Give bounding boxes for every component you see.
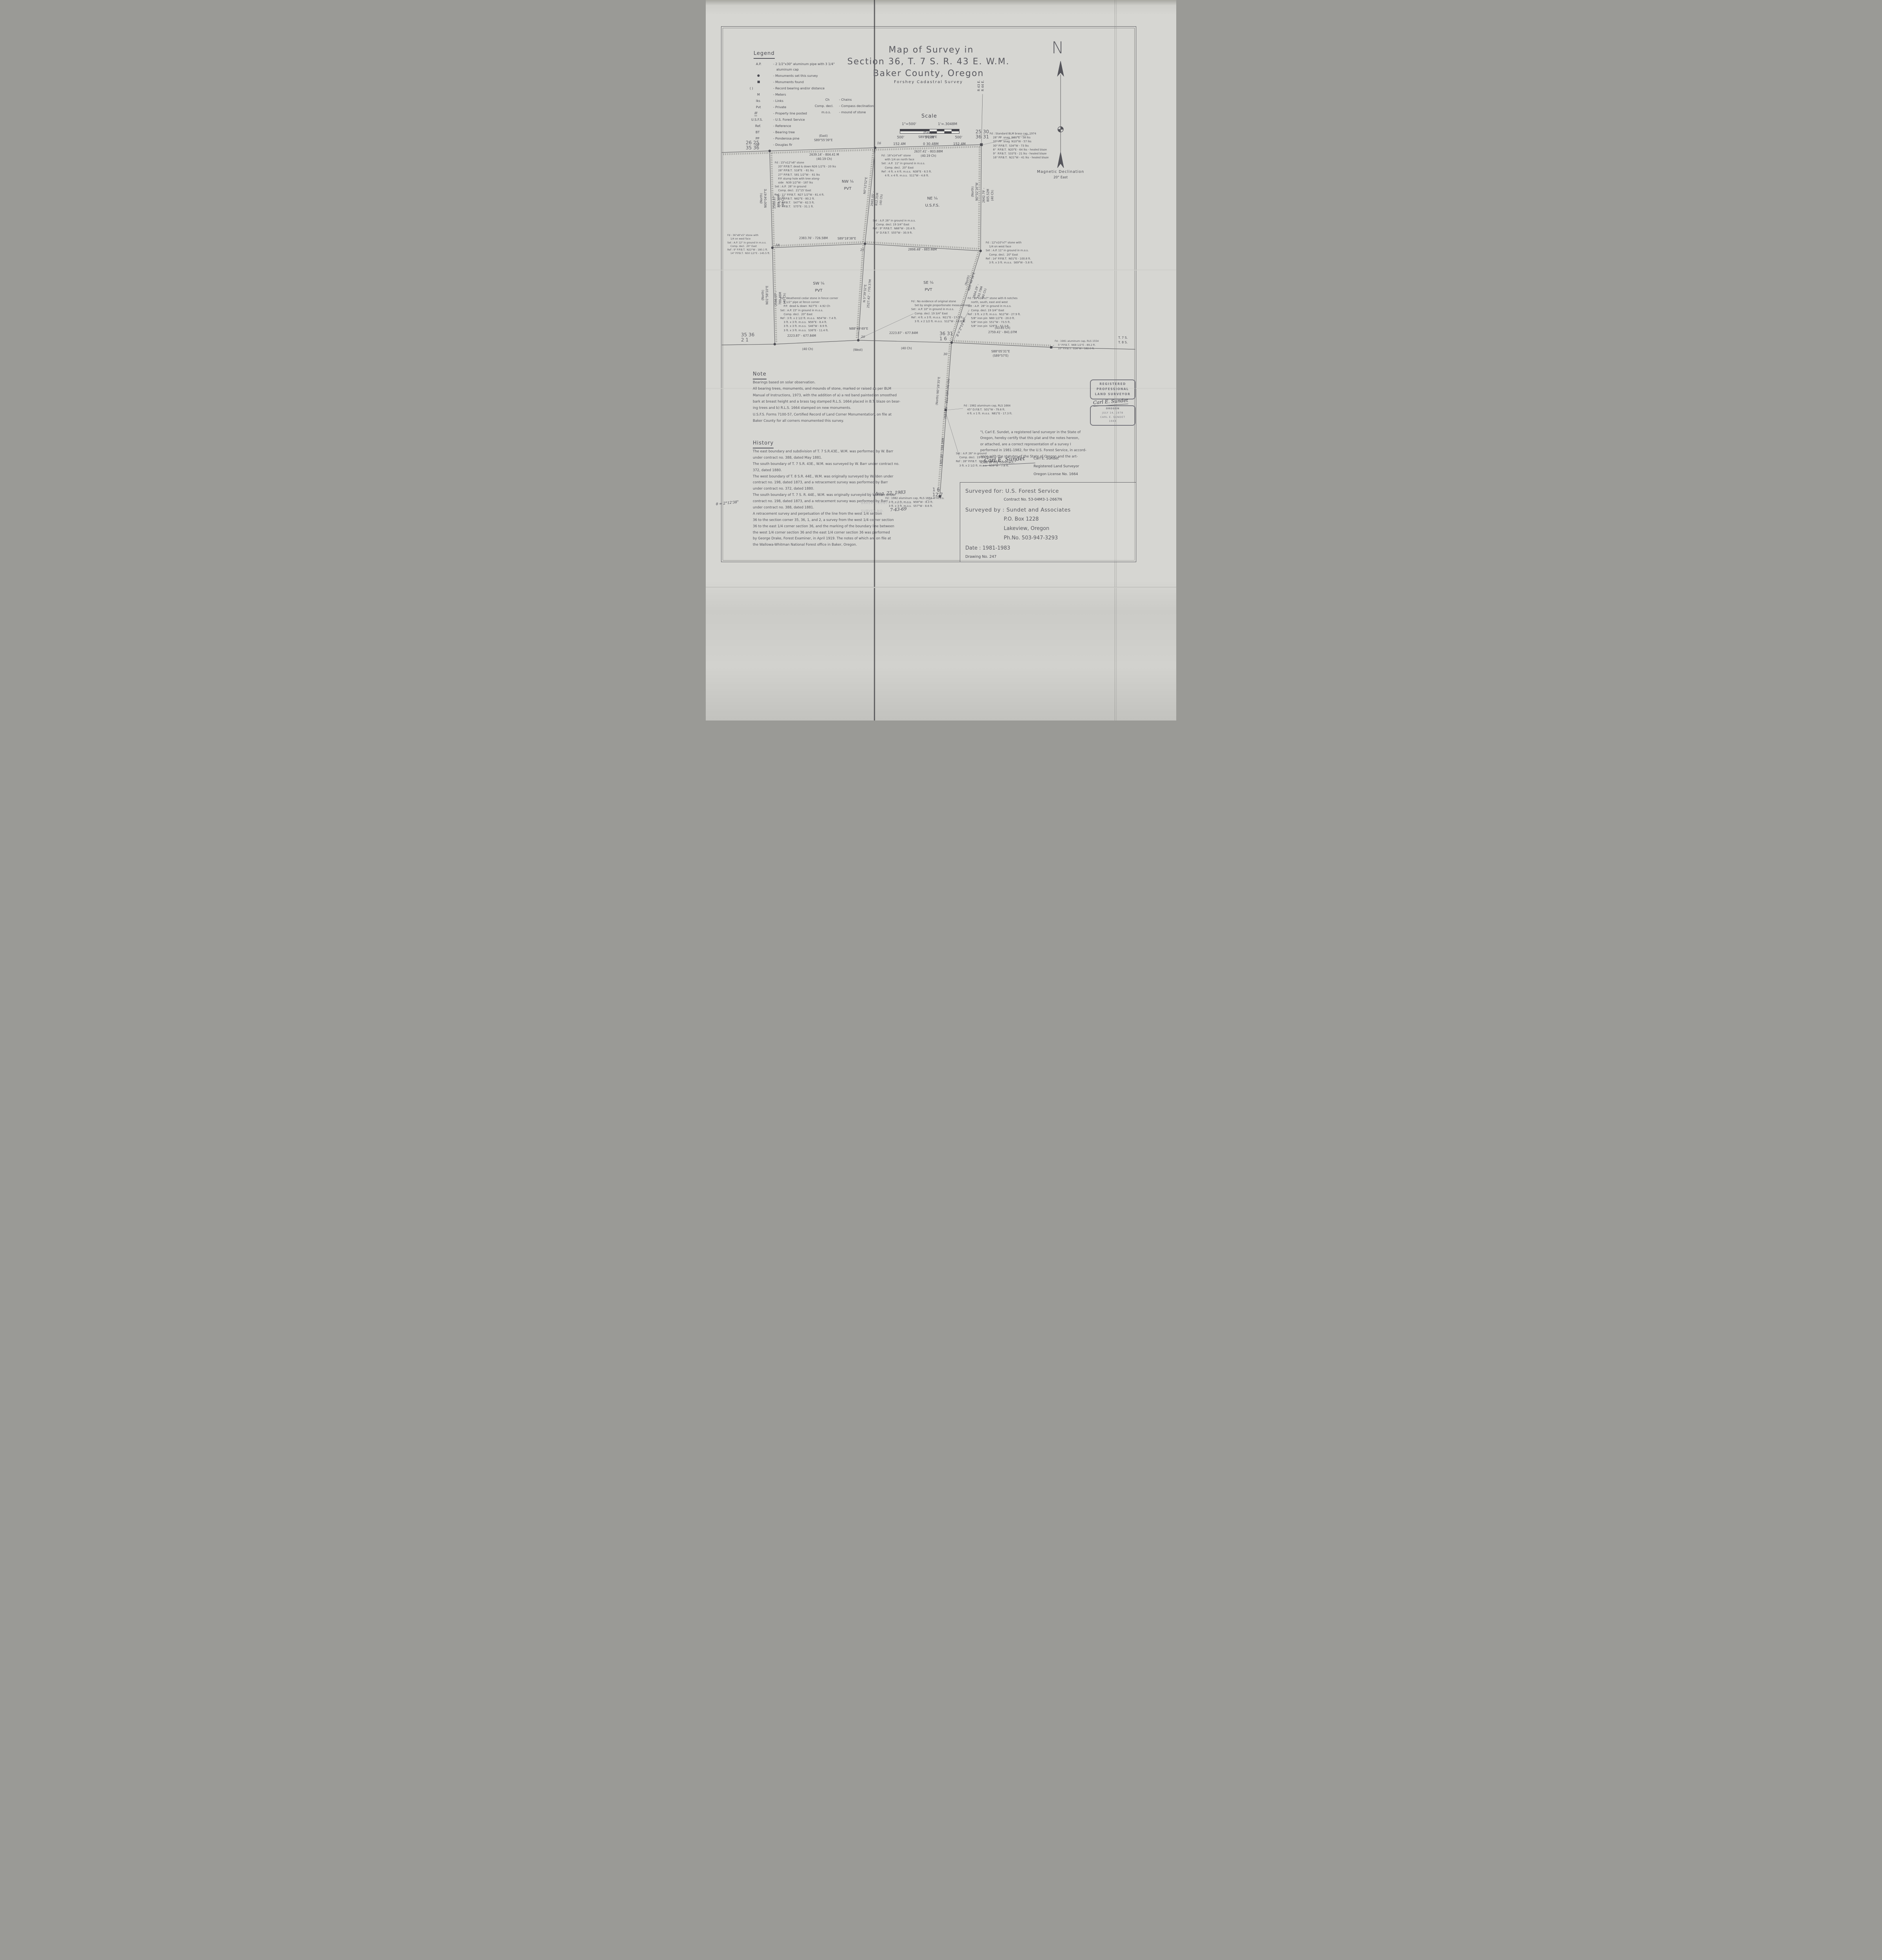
pls-stamp-top: REGISTERED PROFESSIONAL LAND SURVEYOR [1090, 379, 1135, 399]
corner-note-nw: Fd : 15"x12"x6" stone 20" P.P.B.T. dead … [775, 161, 836, 209]
line-label-north-west-bearing: (East) S89°55'39"E [814, 134, 832, 143]
line-label-mid-west-bearing: S89°18'38"E [837, 237, 856, 241]
handwritten-21: 21 [860, 248, 864, 252]
survey-map-lines [706, 0, 1176, 720]
titleblock-surveyed-for: Surveyed for: U.S. Forest Service [965, 488, 1059, 495]
quarter-label-sw: SW ¼ PVT [813, 280, 824, 294]
note-section-body: Bearings based on solar observation. All… [753, 379, 930, 424]
note-section-title: Note [753, 371, 767, 379]
stamp-line1: REGISTERED [1091, 381, 1135, 387]
quarter-label-ne: NE ¼ U.S.F.S. [925, 195, 940, 209]
filing-stamp-survey-no: SURVEY NO. [861, 509, 884, 514]
quarter-label-se: SE ¼ PVT [923, 279, 934, 294]
certification-name: Carl E. Sundet [1034, 456, 1059, 461]
corner-note-east-quarter: Fd : 12"x10"x7" stone with 1/4 on west f… [986, 241, 1033, 265]
corner-note-north-quarter: Fd : 16"x14"x4" stone with 1/4 on north … [881, 154, 932, 178]
corner-note-sw: Fd : Weathered cedar stone in fence corn… [780, 296, 838, 332]
titleblock-surveyed-by: Surveyed by : Sundet and Associates [965, 506, 1071, 514]
titleblock-date: Date : 1981-1983 [965, 545, 1010, 552]
titleblock-phone: Ph.No. 503-947-3293 [1004, 535, 1058, 542]
township-line-label: T. 7 S. T. 8 S. [1118, 336, 1128, 345]
line-label-mid-west-distance: 2383.76' - 726.58M [799, 236, 828, 241]
line-label-south-w2-chains: (40 Ch) [901, 347, 912, 351]
range-line-label: R 43 E. R 44 E. [977, 80, 985, 91]
line-label-mid-east-distance: 2898.48' - 883.46M [908, 248, 937, 252]
pls-stamp-bottom: OREGON JULY 14, 1978 CARL E. SUNDET 1664 [1090, 405, 1135, 426]
line-label-south-west-record: (West) [853, 348, 863, 352]
section-numbers-nw: 26 25 35 36 [746, 140, 759, 151]
titleblock-address1: P.O. Box 1228 [1004, 516, 1039, 523]
stamp-number: 1664 [1091, 419, 1135, 424]
section-numbers-sw: 35 36 2 1 [741, 332, 754, 343]
filing-stamp-filed: FILED [862, 492, 876, 497]
section-numbers-se: 36 31 1 6 [939, 331, 953, 341]
corner-note-west-quarter: Fd : 36"x8"x5" stone with 1/4 on west fa… [727, 234, 770, 256]
stamp-state: OREGON [1091, 407, 1135, 411]
certification-role: Registered Land Surveyor [1034, 464, 1079, 469]
corner-note-center: Set : A.P. 26" in ground in m.o.s. Comp.… [873, 219, 916, 235]
titleblock-address2: Lakeview, Oregon [1004, 525, 1049, 533]
stamp-name: CARL E. SUNDET [1091, 416, 1135, 420]
found-note-1982-cap-mid: Fd : 1982 aluminum cap, RLS 1664 45" D.F… [964, 404, 1012, 416]
line-label-west-south-bearing: (North) N01°58'10"E [761, 283, 770, 307]
stamp-line2: PROFESSIONAL [1091, 387, 1135, 392]
handwritten-30: 30 [943, 352, 947, 357]
corner-note-se-six-notches: Fd : 16"x10"x7" stone with 6 notches nor… [968, 296, 1021, 328]
handwritten-18: 18 [776, 243, 779, 248]
certification-license: Oregon License No. 1664 [1034, 472, 1078, 477]
corner-note-ne: Fd : Standard BLM brass cap, 1974 28" PP… [990, 132, 1049, 160]
line-label-north-east-bearing: (East) S89°50'29"E [918, 131, 937, 140]
line-label-south-w1-chains: (40 Ch) [802, 347, 813, 352]
line-label-west-north-bearing: (North) N00°04'47"E [759, 187, 768, 210]
history-section-title: History [753, 440, 774, 448]
line-label-south-w2-distance: 2223.87' - 677.84M [889, 331, 918, 336]
section-numbers-ne: 25 30 36 31 [976, 129, 989, 140]
titleblock-contract: Contract No. 53-04M3-1-2667N [1004, 497, 1062, 503]
filing-stamp-county: BAKER COUNTY SURVEYOR [861, 501, 912, 506]
history-section-body: The east boundary and subdivision of T. … [753, 449, 937, 548]
line-label-east-north-bearing: (North) N0°02'16"W [971, 180, 979, 204]
handwritten-16: 16 [877, 141, 881, 146]
handwritten-20: 20 [861, 335, 865, 339]
line-label-east-north-distance: 2642.79' - 805.52M (40 Ch) [982, 181, 995, 209]
quarter-label-nw: NW ¼ PVT [842, 178, 854, 192]
line-label-south-w1-distance: 2223.87' - 677.84M [787, 334, 816, 338]
line-label-township-bearing: S88°05'31"E (S89°57'E) [991, 350, 1010, 358]
stamp-date: JULY 14, 1978 [1091, 411, 1135, 416]
filing-survey-no-handwritten: 7-43-69 [890, 506, 906, 514]
titleblock-drawing-no: Drawing No. 247 [965, 554, 996, 560]
survey-plat-sheet: Legend A.P. - 2 1/2"x30" aluminum pipe w… [706, 0, 1176, 720]
found-note-1981-cap: Fd : 1981 aluminum cap, RLS 1554 5" P.P.… [1055, 339, 1099, 351]
line-label-south-bearing: N88°49'49"E [849, 327, 868, 331]
stamp-line3: LAND SURVEYOR [1091, 392, 1135, 397]
line-label-north-west-distance: 2639.14' - 804.41 M (40.19 Ch) [809, 153, 839, 162]
